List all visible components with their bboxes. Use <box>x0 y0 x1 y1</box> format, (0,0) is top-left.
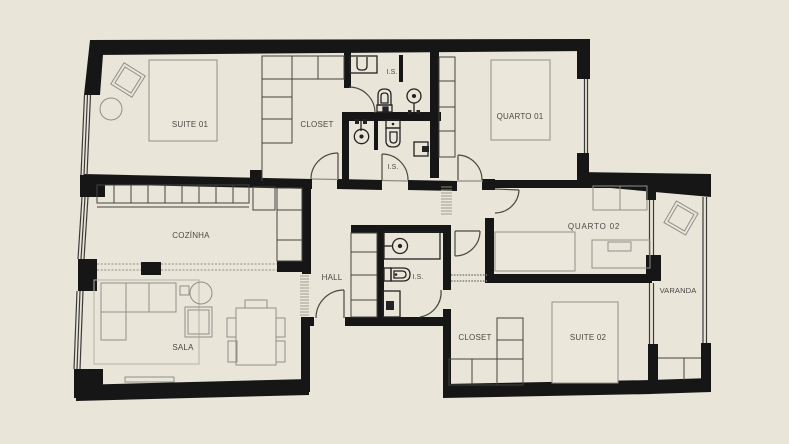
svg-text:I.S.: I.S. <box>388 164 399 171</box>
svg-text:HALL: HALL <box>322 273 343 282</box>
svg-text:QUARTO 01: QUARTO 01 <box>497 112 544 121</box>
svg-text:CLOSET: CLOSET <box>458 333 491 342</box>
svg-text:SUITE 01: SUITE 01 <box>172 120 209 129</box>
svg-text:QUARTO 02: QUARTO 02 <box>568 222 620 231</box>
svg-text:VARANDA: VARANDA <box>660 286 698 295</box>
svg-text:SALA: SALA <box>172 343 194 352</box>
svg-text:I.S.: I.S. <box>413 274 424 281</box>
svg-text:I.S.: I.S. <box>387 69 398 76</box>
svg-text:CLOSET: CLOSET <box>300 120 333 129</box>
svg-text:COZÍNHA: COZÍNHA <box>172 231 210 240</box>
svg-text:SUITE 02: SUITE 02 <box>570 333 607 342</box>
